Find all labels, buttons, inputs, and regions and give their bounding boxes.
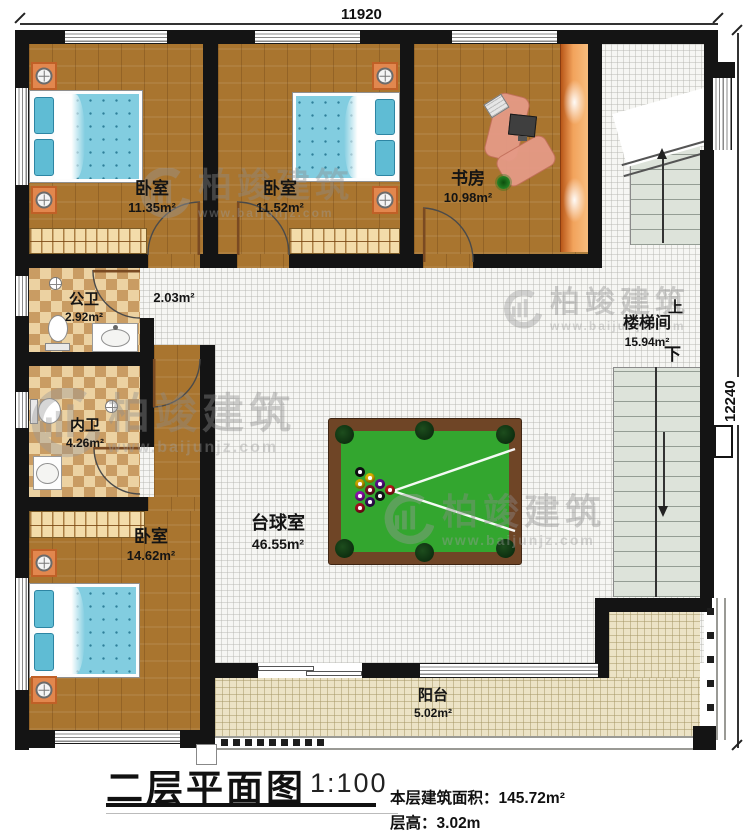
sink-basin: [101, 329, 130, 347]
floor-plan: 柏竣建筑 www.baijunjz.com 柏竣建筑 www.baijunjz.…: [0, 0, 750, 831]
lamp-icon: [36, 682, 53, 699]
lamp-icon: [377, 192, 394, 209]
wall: [15, 254, 148, 268]
nightstand: [372, 186, 398, 214]
wall: [167, 30, 255, 44]
billiard-ball: [355, 503, 365, 513]
wall: [203, 44, 218, 254]
wall: [700, 150, 714, 598]
window: [15, 88, 29, 185]
lamp-icon: [36, 68, 53, 85]
wall: [557, 30, 704, 44]
floor-area-value: 145.72m²: [499, 790, 565, 807]
railing-post: [707, 680, 714, 687]
bed-sheet: [55, 587, 85, 674]
wall: [588, 44, 602, 268]
bedroom1-bed: [29, 90, 143, 183]
inner-bath-door: [94, 447, 140, 494]
stair-divider-line: [655, 367, 657, 597]
balcony-floor: [215, 678, 700, 737]
billiard-ball: [365, 497, 375, 507]
stair-down-arrow-head: [658, 506, 668, 517]
wall: [473, 254, 602, 268]
balcony-floor-right: [609, 612, 700, 678]
pillow: [375, 140, 395, 176]
nightstand: [31, 676, 57, 704]
wall: [200, 511, 215, 750]
wall: [704, 62, 735, 78]
nightstand: [31, 549, 57, 577]
window: [255, 30, 360, 44]
bed-sheet: [344, 96, 374, 178]
pillow: [34, 590, 54, 628]
railing-post: [269, 739, 276, 746]
wall: [15, 44, 29, 88]
window: [65, 30, 167, 44]
lamp-icon: [36, 555, 53, 572]
window: [15, 392, 29, 428]
railing-post: [707, 656, 714, 663]
wall: [15, 30, 65, 44]
dimension-right-value: 12240: [722, 377, 739, 425]
toilet: [38, 398, 61, 424]
billiard-ball: [365, 485, 375, 495]
public-bath-label: 公卫2.92m²: [65, 290, 103, 325]
stairs-up-label: 上: [668, 296, 683, 317]
balcony-corner-pillar: [693, 726, 716, 750]
railing-post: [233, 739, 240, 746]
railing-post: [707, 704, 714, 711]
title-underline-thin: [106, 813, 398, 814]
wall: [360, 30, 452, 44]
wall: [15, 730, 55, 748]
balcony-label: 阳台5.02m²: [414, 686, 452, 721]
railing-line: [215, 748, 712, 750]
railing-line: [716, 598, 718, 740]
window: [452, 30, 557, 44]
wall: [215, 663, 258, 678]
window: [420, 663, 598, 678]
faucet-icon: [113, 325, 118, 330]
floor-height-note: 层高：3.02m: [390, 811, 480, 831]
bed-sheet: [55, 94, 85, 179]
billiard-ball: [355, 479, 365, 489]
billiard-room-label: 台球室46.55m²: [251, 512, 305, 554]
floor-height-label: 层高：: [390, 815, 437, 831]
wall: [362, 663, 420, 678]
wall: [289, 254, 423, 268]
billiard-table: [328, 418, 522, 565]
dimension-tick: [14, 12, 25, 23]
bedroom1-label: 卧室11.35m²: [128, 178, 176, 217]
computer-monitor-icon: [508, 114, 537, 138]
bedroom2-bed: [292, 92, 400, 182]
window: [712, 78, 732, 150]
wall: [200, 345, 215, 511]
billiard-ball: [375, 491, 385, 501]
railing-line: [724, 598, 726, 740]
railing-post: [221, 739, 228, 746]
floor-area-label: 本层建筑面积：: [390, 790, 499, 807]
floor-area-note: 本层建筑面积：145.72m²: [390, 786, 565, 808]
sink-basin: [36, 463, 59, 484]
bedroom3-bed: [29, 583, 140, 678]
sliding-door-panel: [306, 671, 362, 676]
floor-height-value: 3.02m: [437, 815, 481, 831]
bedroom3-label: 卧室14.62m²: [127, 526, 175, 565]
hall-area-label: 2.03m²: [153, 290, 194, 307]
window: [15, 276, 29, 316]
dimension-tick: [712, 12, 723, 23]
doorway-wood: [148, 254, 200, 268]
lamp-icon: [36, 192, 53, 209]
railing-line: [215, 736, 700, 738]
window: [55, 730, 180, 744]
doorway-wood: [148, 497, 200, 511]
railing-post: [245, 739, 252, 746]
pillow: [34, 139, 54, 176]
railing-post: [317, 739, 324, 746]
window: [15, 578, 29, 690]
study-bookshelf: [560, 44, 588, 252]
wall: [140, 366, 154, 447]
ceiling-lamp-icon: [49, 277, 62, 290]
study-door: [423, 208, 473, 262]
monitor-stand: [518, 136, 527, 141]
window-bay: [714, 425, 733, 458]
lamp-icon: [377, 68, 394, 85]
wall: [595, 598, 712, 612]
pillow: [34, 97, 54, 134]
railing-post: [707, 632, 714, 639]
billiard-ball: [385, 485, 395, 495]
billiard-ball: [355, 491, 365, 501]
stair-down-arrow-line: [663, 432, 665, 508]
bedroom2-wardrobe: [289, 228, 400, 254]
stair-up-arrow-head: [657, 148, 667, 159]
railing-post: [257, 739, 264, 746]
study-label: 书房10.98m²: [444, 168, 492, 207]
wall: [15, 497, 148, 511]
toilet-tank: [30, 399, 38, 424]
plant-icon: [497, 176, 510, 189]
railing-post: [707, 608, 714, 615]
wall: [200, 254, 237, 268]
toilet-tank: [45, 343, 70, 351]
inner-bath-label: 内卫4.26m²: [66, 416, 104, 451]
stair-up-arrow-line: [662, 158, 664, 243]
stairs-down-label: 下: [664, 340, 681, 365]
railing-post: [281, 739, 288, 746]
plan-scale: 1:100: [310, 768, 388, 799]
bedroom1-wardrobe: [29, 228, 147, 254]
billiard-ball: [365, 473, 375, 483]
dimension-line-top: [20, 23, 718, 25]
pillow: [34, 633, 54, 671]
title-underline-thick: [106, 803, 376, 807]
wall: [140, 318, 154, 352]
wall: [15, 352, 154, 366]
wall: [400, 44, 414, 254]
nightstand: [372, 62, 398, 90]
billiard-ball: [355, 467, 365, 477]
nightstand: [31, 186, 57, 214]
vestibule-door: [153, 359, 200, 407]
dimension-top-value: 11920: [338, 6, 385, 23]
railing-post: [305, 739, 312, 746]
ceiling-lamp-icon: [105, 400, 118, 413]
wall: [704, 78, 712, 150]
stairs-lower-flight: [613, 367, 700, 597]
bedroom2-label: 卧室11.52m²: [256, 178, 304, 217]
nightstand: [31, 62, 57, 90]
doorway-wood: [237, 254, 289, 268]
wall: [704, 30, 718, 62]
billiard-ball: [375, 479, 385, 489]
pillow: [375, 99, 395, 135]
railing-post: [293, 739, 300, 746]
